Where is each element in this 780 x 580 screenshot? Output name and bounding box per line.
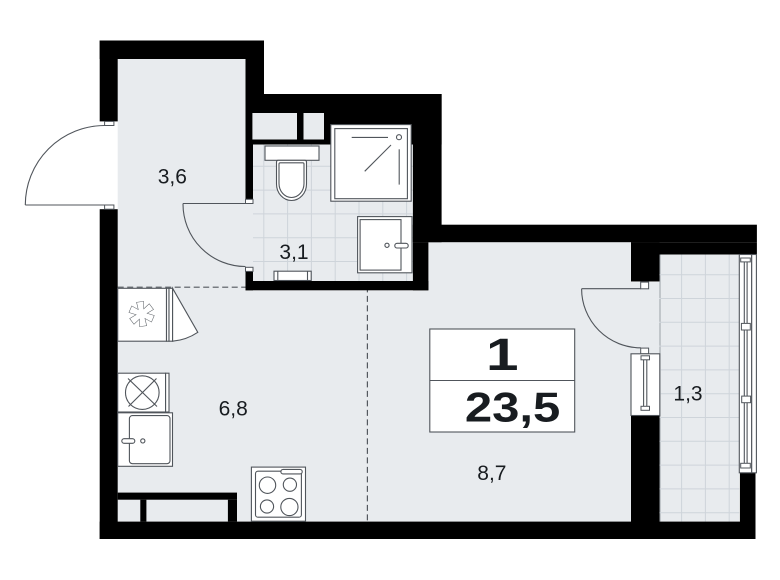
svg-text:1,3: 1,3 (673, 382, 702, 405)
svg-text:1: 1 (486, 331, 519, 381)
svg-text:3,1: 3,1 (279, 241, 308, 264)
svg-text:3,6: 3,6 (158, 166, 187, 189)
svg-text:6,8: 6,8 (219, 398, 248, 421)
svg-text:8,7: 8,7 (477, 462, 506, 485)
svg-text:23,5: 23,5 (465, 383, 561, 430)
